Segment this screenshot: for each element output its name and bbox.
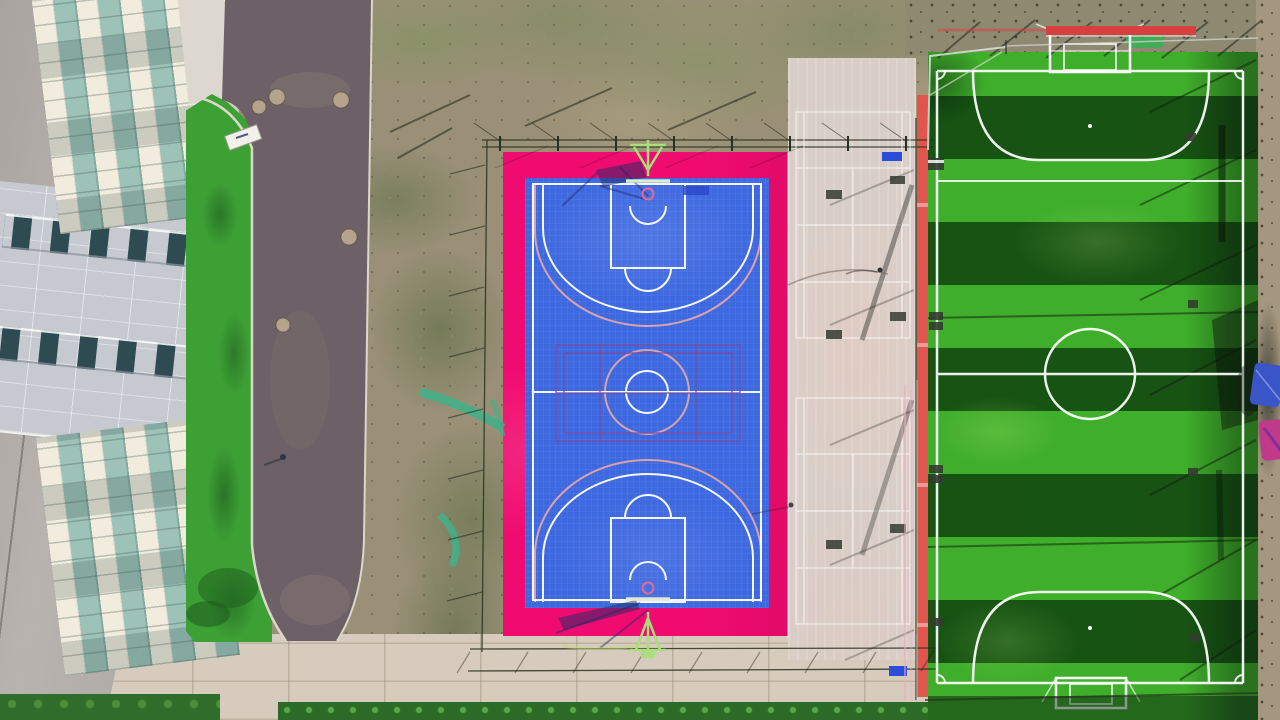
aerial-sports-complex-photo: [0, 0, 1280, 720]
green-mesh-net: [420, 392, 503, 566]
red-barrier-bar: [1046, 26, 1196, 35]
detail-overlay: [0, 0, 1280, 720]
verge-details: [186, 125, 262, 627]
benches: [826, 176, 906, 549]
pedestrians-on-court: [752, 268, 883, 515]
blue-bench: [882, 152, 902, 161]
pitch-lines: [937, 71, 1243, 683]
blue-mat: [683, 186, 709, 195]
basketball-fence: [447, 118, 940, 700]
access-road: [188, 0, 372, 641]
badminton-court-lines: [796, 112, 910, 624]
fence-shadows: [928, 60, 1258, 680]
basketball-hoop-south: [556, 583, 670, 659]
badminton-overlay-lines: [556, 345, 740, 441]
basketball-court-lines: [533, 184, 761, 602]
multi-use-court-details: [752, 112, 914, 676]
running-strip-details: [905, 380, 917, 700]
field-benches: [928, 133, 1200, 642]
soccer-field-details: [925, 24, 1258, 720]
